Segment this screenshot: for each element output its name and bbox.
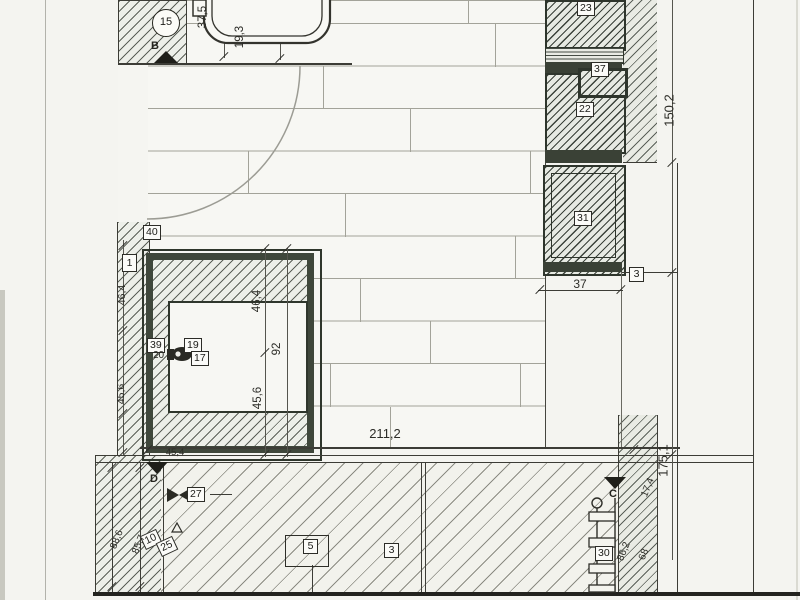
callout-40: 40 (143, 225, 161, 240)
radiator-rung (589, 564, 615, 573)
fixture-triangle-icon (172, 523, 182, 532)
section-marker-b-triangle (154, 51, 178, 63)
dim-45-4: 45,4 (158, 447, 192, 458)
dim-37-5: 37,5 (197, 0, 209, 34)
floor-plan-sheet: 15 B 40 1 39 20 19 17 23 37 22 31 3 D 27… (0, 0, 800, 600)
dim-45-6-wall: 45,6 (115, 376, 127, 412)
callout-31: 31 (574, 211, 592, 226)
dim-19-3: 19,3 (234, 20, 246, 54)
dim-37: 37 (565, 277, 595, 291)
callout-23: 23 (577, 1, 595, 16)
callout-15: 15 (152, 9, 180, 37)
callout-27: 27 (187, 487, 205, 502)
dim-46-4: 46,4 (251, 283, 263, 319)
dim-46-4-wall: 46,4 (116, 277, 128, 313)
callout-37: 37 (591, 62, 609, 77)
dim-211-2: 211,2 (361, 426, 409, 441)
door-swing-arc (147, 66, 300, 219)
callout-1: 1 (122, 254, 137, 272)
callout-20: 20 (153, 350, 164, 361)
dim-92: 92 (271, 336, 283, 362)
dim-45-6: 45,6 (252, 380, 264, 416)
callout-3-floor: 3 (384, 543, 399, 558)
section-marker-b: B (151, 40, 159, 52)
callout-3-shaft: 3 (629, 267, 644, 282)
callout-30: 30 (595, 546, 613, 561)
callout-22: 22 (576, 102, 594, 117)
tap-dot (175, 351, 180, 356)
radiator-valve-icon (592, 498, 602, 508)
callout-5: 5 (303, 539, 318, 554)
section-marker-c: C (609, 488, 617, 500)
section-marker-d: D (150, 473, 158, 485)
radiator-rung (589, 512, 615, 521)
dim-150-2: 150,2 (662, 88, 677, 134)
valve-icon (167, 488, 179, 502)
radiator-rung (589, 585, 615, 592)
callout-17: 17 (191, 351, 209, 366)
